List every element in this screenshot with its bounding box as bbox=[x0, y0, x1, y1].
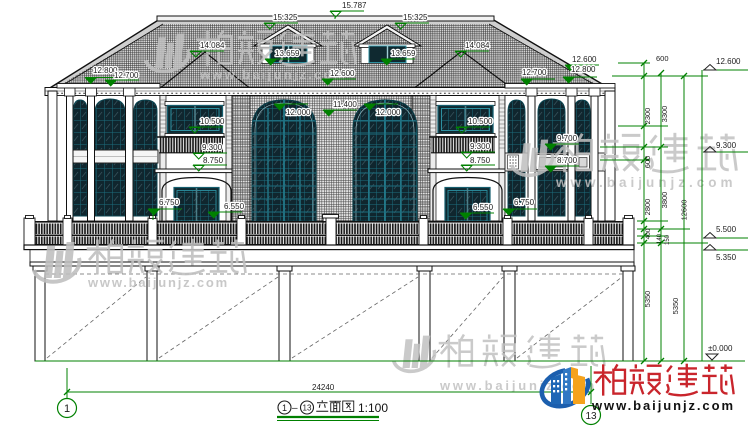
svg-text:9.300: 9.300 bbox=[716, 141, 737, 150]
svg-text:3800: 3800 bbox=[660, 192, 669, 209]
svg-text:14.084: 14.084 bbox=[465, 41, 490, 50]
svg-text:6.750: 6.750 bbox=[514, 198, 535, 207]
svg-text:6.550: 6.550 bbox=[224, 202, 245, 211]
svg-text:13: 13 bbox=[303, 404, 312, 413]
svg-text:9.300: 9.300 bbox=[470, 142, 491, 151]
svg-text:5.500: 5.500 bbox=[716, 225, 737, 234]
svg-text:140: 140 bbox=[657, 233, 663, 244]
svg-text:150: 150 bbox=[665, 234, 671, 245]
svg-text:8.750: 8.750 bbox=[203, 156, 224, 165]
svg-text:12.600: 12.600 bbox=[330, 69, 355, 78]
svg-text:5350: 5350 bbox=[671, 298, 680, 315]
svg-text:www.baijunjz.com: www.baijunjz.com bbox=[87, 275, 229, 290]
svg-text:10.500: 10.500 bbox=[468, 117, 493, 126]
svg-text:8.750: 8.750 bbox=[470, 156, 491, 165]
svg-text:15.787: 15.787 bbox=[342, 1, 367, 10]
svg-text:8.700: 8.700 bbox=[557, 156, 578, 165]
svg-text:5.350: 5.350 bbox=[716, 253, 737, 262]
svg-text:10.500: 10.500 bbox=[200, 117, 225, 126]
svg-text:600: 600 bbox=[643, 156, 652, 169]
svg-text:12.600: 12.600 bbox=[716, 57, 741, 66]
svg-text:400: 400 bbox=[645, 228, 652, 239]
svg-text:3300: 3300 bbox=[660, 106, 669, 123]
svg-text:12600: 12600 bbox=[680, 200, 689, 221]
svg-text:6.750: 6.750 bbox=[159, 198, 180, 207]
svg-text:www.baijunjz.com: www.baijunjz.com bbox=[555, 175, 737, 190]
svg-text:11.400: 11.400 bbox=[333, 100, 357, 109]
svg-text:24240: 24240 bbox=[312, 383, 335, 392]
svg-text:13.659: 13.659 bbox=[391, 49, 416, 58]
svg-text:15.325: 15.325 bbox=[403, 13, 428, 22]
svg-text:2300: 2300 bbox=[643, 108, 652, 125]
svg-text:13.659: 13.659 bbox=[275, 49, 300, 58]
svg-text:1: 1 bbox=[282, 403, 287, 413]
svg-text:–: – bbox=[292, 403, 298, 414]
svg-text:1:100: 1:100 bbox=[358, 401, 388, 415]
svg-text:www.baijunjz.com: www.baijunjz.com bbox=[591, 398, 733, 413]
svg-text:1: 1 bbox=[64, 403, 70, 415]
svg-text:12.800: 12.800 bbox=[571, 65, 596, 74]
svg-text:9.700: 9.700 bbox=[557, 134, 578, 143]
svg-text:9.300: 9.300 bbox=[202, 143, 223, 152]
svg-text:2800: 2800 bbox=[643, 199, 652, 216]
svg-text:12.600: 12.600 bbox=[572, 55, 597, 64]
svg-text:6.550: 6.550 bbox=[473, 203, 494, 212]
svg-text:±0.000: ±0.000 bbox=[708, 344, 733, 353]
svg-text:12.000: 12.000 bbox=[286, 108, 311, 117]
svg-text:5350: 5350 bbox=[643, 291, 652, 308]
svg-text:15.325: 15.325 bbox=[273, 13, 298, 22]
svg-text:14.084: 14.084 bbox=[200, 41, 225, 50]
svg-text:600: 600 bbox=[656, 54, 669, 63]
svg-text:12.700: 12.700 bbox=[522, 68, 547, 77]
svg-text:12.700: 12.700 bbox=[114, 71, 139, 80]
svg-text:12.000: 12.000 bbox=[376, 108, 401, 117]
